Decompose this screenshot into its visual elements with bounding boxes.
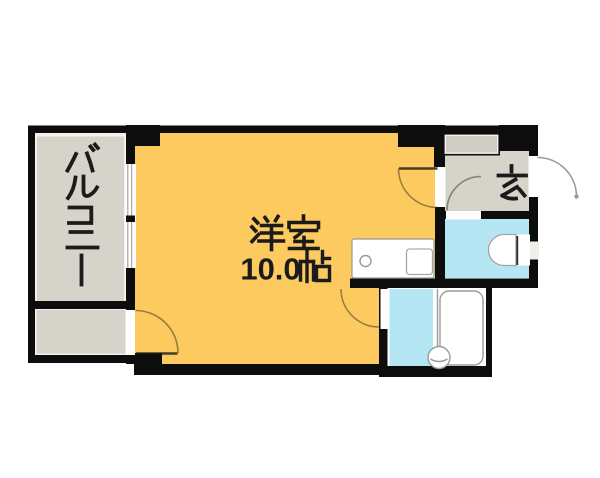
- svg-text:10.0: 10.0: [240, 252, 300, 287]
